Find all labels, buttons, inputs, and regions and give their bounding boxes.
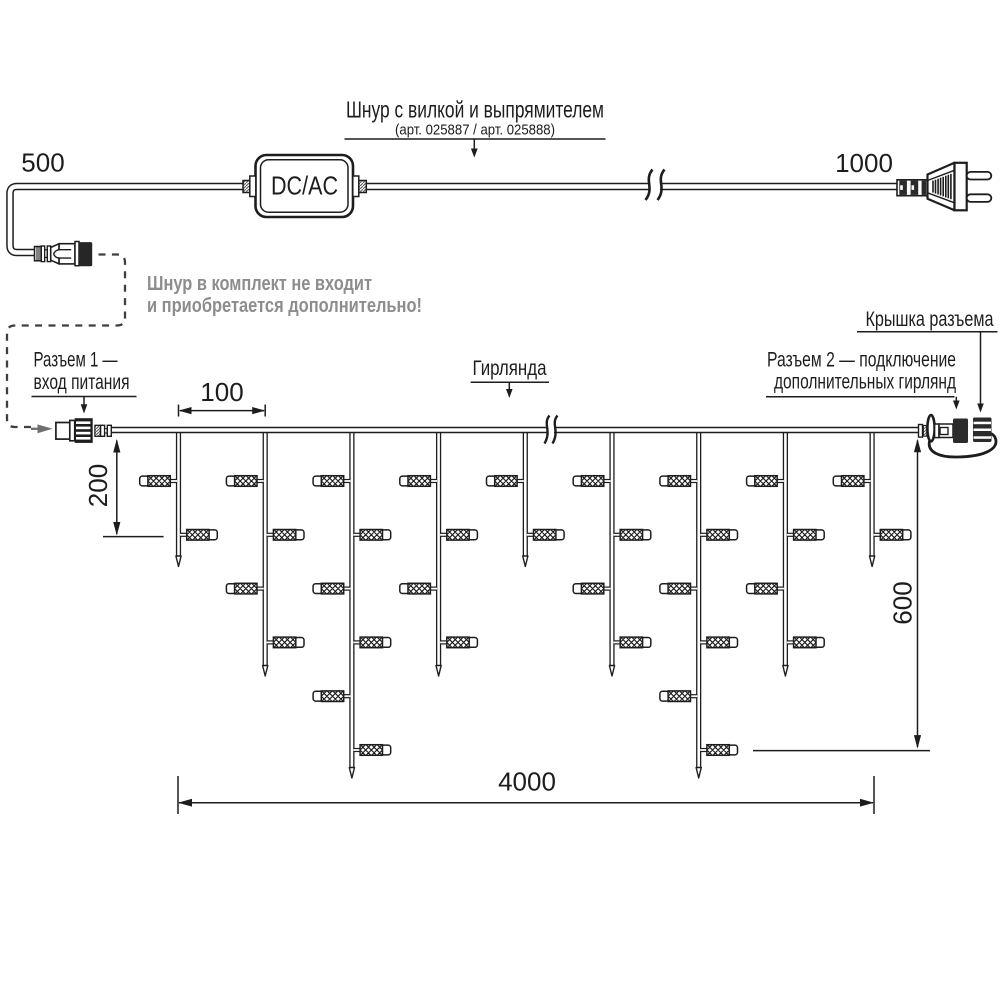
svg-text:Гирлянда: Гирлянда	[473, 357, 547, 380]
svg-text:600: 600	[888, 581, 918, 624]
svg-text:вход питания: вход питания	[34, 371, 130, 394]
svg-text:100: 100	[200, 377, 243, 407]
svg-text:DC/AC: DC/AC	[271, 173, 338, 201]
svg-text:Разъем 1 —: Разъем 1 —	[34, 349, 118, 372]
svg-text:дополнительных гирлянд: дополнительных гирлянд	[774, 371, 956, 394]
svg-text:Шнур в комплект не входит: Шнур в комплект не входит	[147, 273, 372, 295]
svg-text:4000: 4000	[498, 767, 556, 797]
svg-text:200: 200	[83, 464, 113, 507]
svg-text:1000: 1000	[835, 148, 893, 178]
svg-text:и приобретается дополнительно!: и приобретается дополнительно!	[147, 295, 422, 317]
svg-text:500: 500	[21, 148, 64, 178]
svg-text:Разъем 2 — подключение: Разъем 2 — подключение	[767, 349, 956, 372]
svg-text:Крышка разъема: Крышка разъема	[866, 308, 994, 331]
svg-text:(арт. 025887 / арт. 025888): (арт. 025887 / арт. 025888)	[395, 122, 555, 139]
svg-text:Шнур с вилкой и выпрямителем: Шнур с вилкой и выпрямителем	[346, 97, 604, 123]
